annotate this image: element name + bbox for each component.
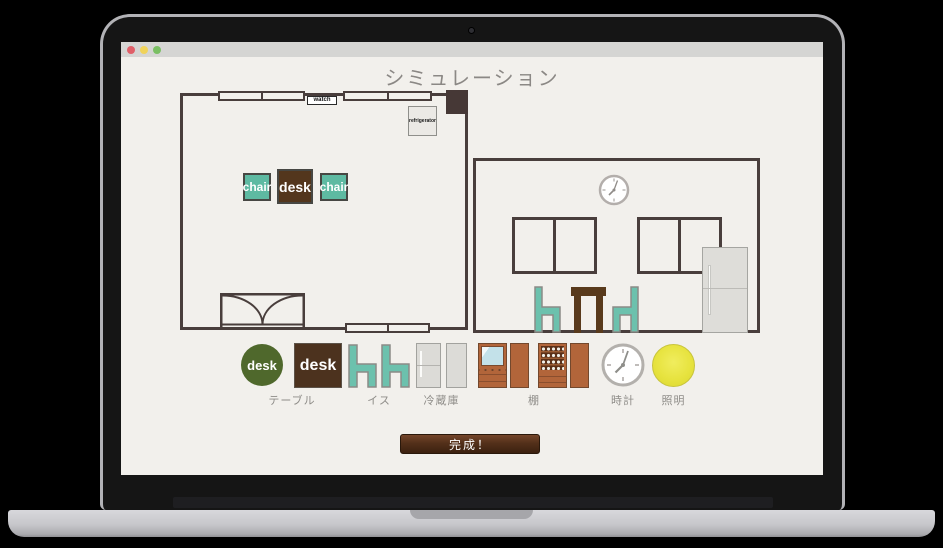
page-title: シミュレーション [121,62,823,91]
simulation-app: シミュレーション watch refrigerator chair desk c… [121,57,823,475]
fridge-handle [708,265,711,315]
window-mullion [387,325,389,331]
window-mullion [678,220,681,271]
drawer-line [479,374,506,375]
minimize-window-button[interactable] [140,46,148,54]
placed-wall-clock-item[interactable] [598,174,630,206]
drawer-line [479,381,506,382]
floorplan-room: watch refrigerator chair desk chair [180,93,468,330]
lid-bottom-edge [173,497,773,508]
browser-window: シミュレーション watch refrigerator chair desk c… [121,42,823,475]
fridge-door-split [703,288,747,289]
cabinet-glass [481,346,504,366]
placed-chair-item[interactable]: chair [243,173,271,201]
elevation-room [473,158,760,333]
chair-icon[interactable] [348,344,377,388]
palette-label-shelf: 棚 [478,392,590,408]
shelf-door-icon[interactable] [570,343,589,388]
plan-window-bottom [345,323,430,333]
placed-watch-item[interactable]: watch [307,96,337,105]
drawer-line [539,376,566,377]
laptop-lid: シミュレーション watch refrigerator chair desk c… [100,14,845,510]
table-leg [574,295,581,333]
close-window-button[interactable] [127,46,135,54]
double-door-icon [220,293,305,330]
placed-refrigerator-elevation-item[interactable] [702,247,748,333]
drawer-line [539,382,566,383]
palette-label-chair: イス [348,392,410,408]
shelf-door-icon[interactable] [510,343,529,388]
plan-window-top-left [218,91,305,101]
palette-label-light: 照明 [652,392,695,408]
placed-desk-item[interactable]: desk [277,169,313,204]
refrigerator-icon[interactable] [416,343,441,388]
fridge-handle [420,351,422,377]
webcam-dot [468,27,475,34]
fridge-door-split [417,365,440,366]
laptop-base [8,510,935,537]
elevation-window-left [512,217,597,274]
shelf-dishes [541,346,564,370]
finish-button[interactable]: 完成！ [400,434,540,454]
zoom-window-button[interactable] [153,46,161,54]
window-titlebar [121,42,823,57]
plan-window-top-right [343,91,432,101]
placed-table-item[interactable] [571,287,606,333]
window-mullion [261,93,263,99]
clock-icon[interactable] [601,343,645,387]
dish-shelf-icon[interactable] [538,343,567,388]
palette-label-clock: 時計 [601,392,645,408]
cabinet-knobs [479,369,506,371]
window-mullion [553,220,556,271]
glass-cabinet-icon[interactable] [478,343,507,388]
refrigerator-door-icon[interactable] [446,343,467,388]
chair-icon[interactable] [381,344,410,388]
palette-label-table: テーブル [241,392,343,408]
wall-pillar [446,90,468,114]
table-round-icon[interactable]: desk [241,344,283,386]
laptop-base-notch [410,510,533,519]
light-icon[interactable] [652,344,695,387]
table-square-icon[interactable]: desk [294,343,342,388]
placed-chair-item[interactable]: chair [320,173,348,201]
palette-label-refrigerator: 冷蔵庫 [416,392,467,408]
window-mullion [387,93,389,99]
placed-refrigerator-item[interactable]: refrigerator [408,106,437,136]
table-leg [596,295,603,333]
placed-side-chair-item[interactable] [534,286,561,333]
placed-side-chair-item[interactable] [612,286,639,333]
